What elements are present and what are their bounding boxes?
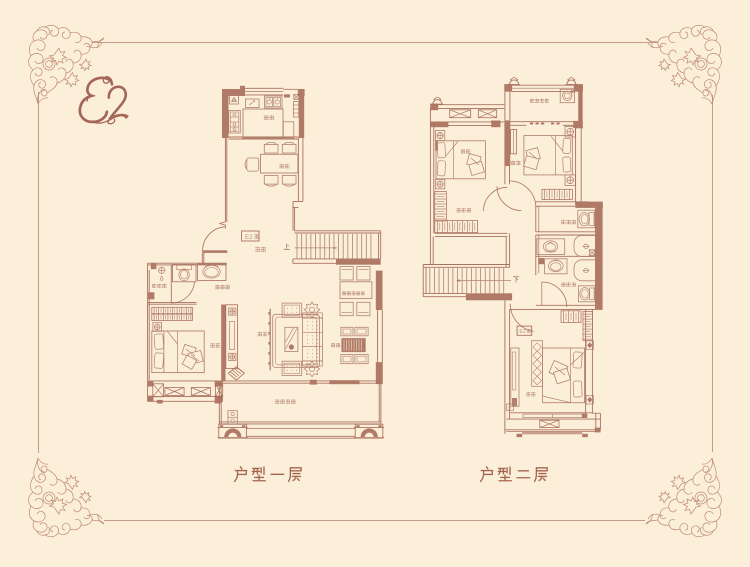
svg-text:E2: E2 <box>245 234 253 241</box>
svg-text:E2: E2 <box>519 329 526 335</box>
